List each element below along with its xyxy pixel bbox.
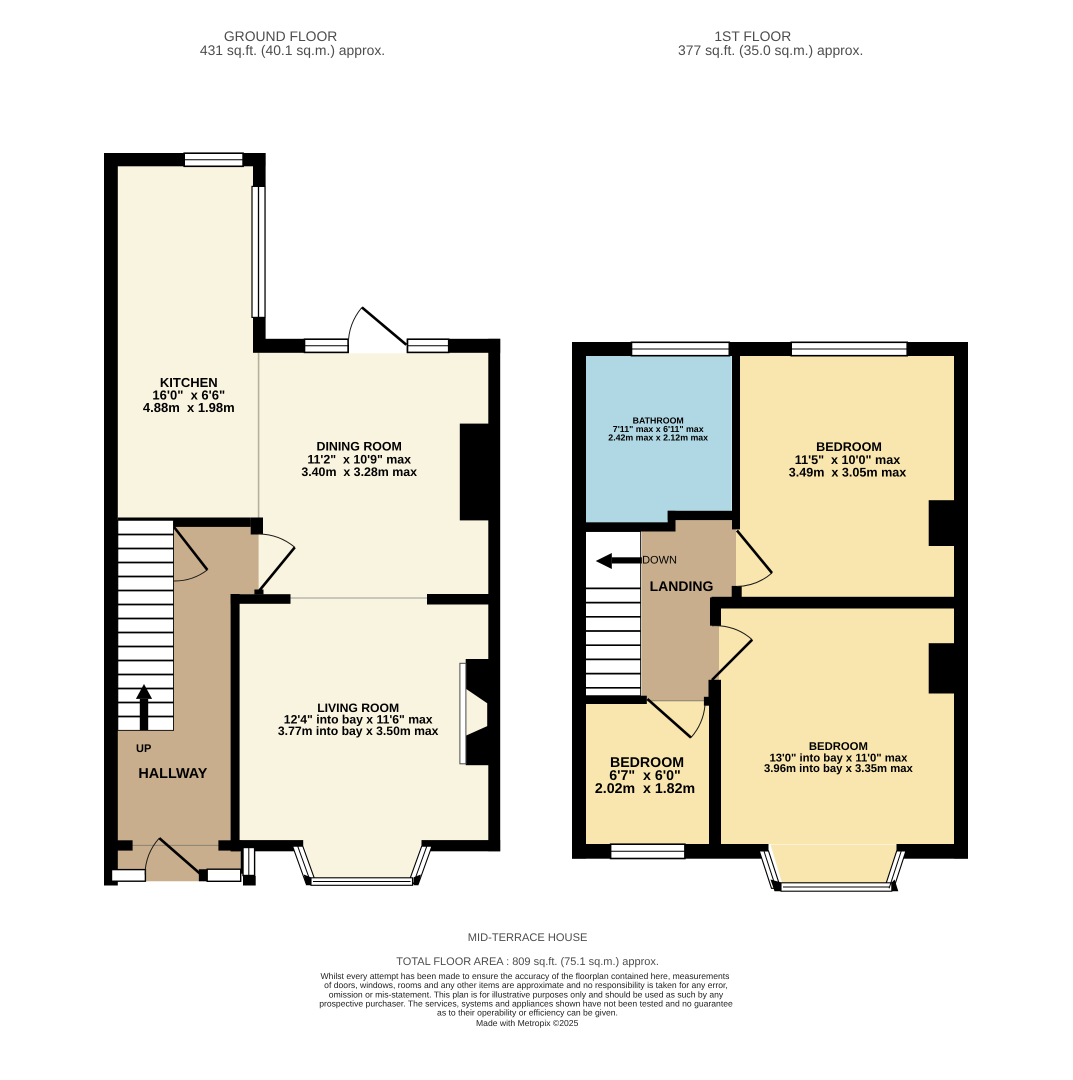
svg-text:TOTAL FLOOR AREA : 809 sq.ft.: TOTAL FLOOR AREA : 809 sq.ft. (75.1 sq.m… <box>396 956 659 968</box>
svg-text:BEDROOM: BEDROOM <box>809 741 868 753</box>
svg-text:as to their operability or eff: as to their operability or efficiency ca… <box>437 1008 618 1018</box>
svg-text:UP: UP <box>136 743 151 755</box>
svg-text:2.42m max x 2.12m max: 2.42m max x 2.12m max <box>608 433 708 443</box>
svg-text:4.88m x 1.98m: 4.88m x 1.98m <box>143 400 235 415</box>
svg-text:3.40m x 3.28m max: 3.40m x 3.28m max <box>301 465 417 479</box>
svg-text:BEDROOM: BEDROOM <box>816 440 882 454</box>
svg-text:3.49m x 3.05m max: 3.49m x 3.05m max <box>789 465 907 479</box>
svg-text:377 sq.ft. (35.0 sq.m.) approx: 377 sq.ft. (35.0 sq.m.) approx. <box>678 42 863 58</box>
svg-text:Made with Metropix ©2025: Made with Metropix ©2025 <box>476 1018 579 1028</box>
svg-text:3.77m into bay x 3.50m max: 3.77m into bay x 3.50m max <box>278 724 439 738</box>
svg-text:2.02m x 1.82m: 2.02m x 1.82m <box>595 781 695 797</box>
svg-text:3.96m into bay x 3.35m max: 3.96m into bay x 3.35m max <box>764 763 914 775</box>
svg-text:DOWN: DOWN <box>642 555 677 567</box>
svg-text:MID-TERRACE HOUSE: MID-TERRACE HOUSE <box>468 932 588 944</box>
svg-text:LANDING: LANDING <box>650 578 714 594</box>
svg-text:HALLWAY: HALLWAY <box>138 766 207 782</box>
svg-text:431 sq.ft. (40.1 sq.m.) approx: 431 sq.ft. (40.1 sq.m.) approx. <box>200 42 385 58</box>
